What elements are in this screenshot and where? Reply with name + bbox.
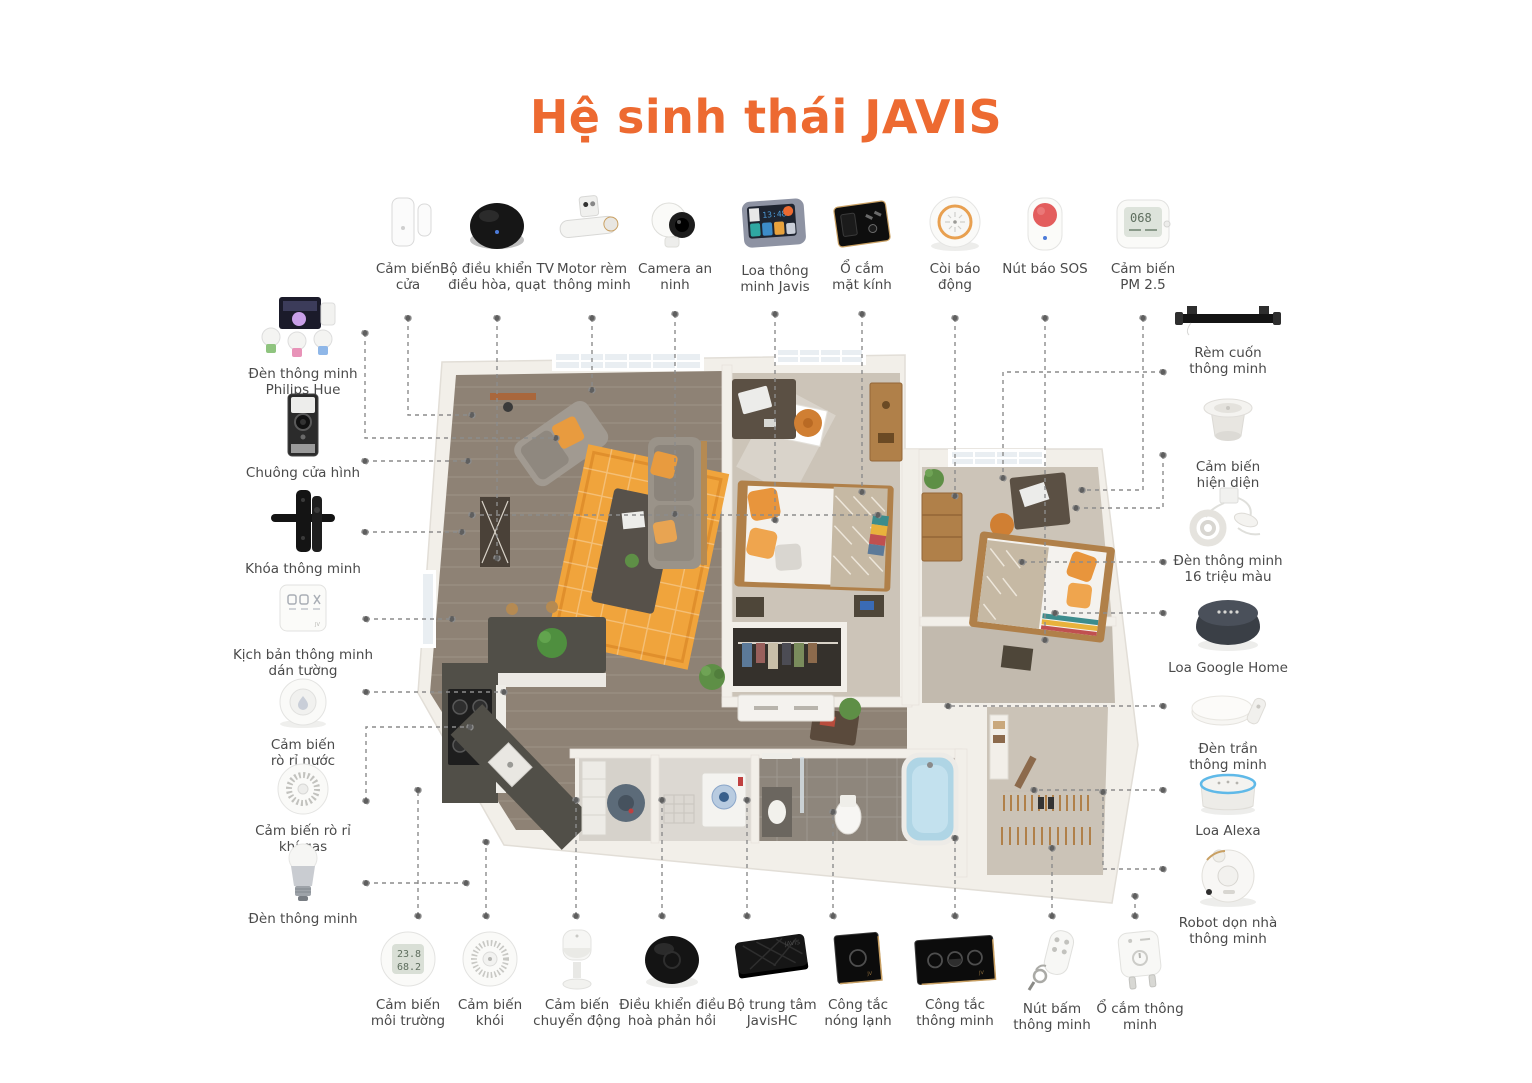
svg-text:068: 068 xyxy=(1130,211,1152,225)
device-label: Khóa thông minh xyxy=(245,561,361,577)
smart-switch-icon: JV xyxy=(910,926,1000,992)
water-leak-sensor-icon xyxy=(265,674,341,732)
philips-hue-kit-icon xyxy=(253,293,353,361)
svg-text:JV: JV xyxy=(978,970,985,976)
video-doorbell-icon xyxy=(265,390,341,460)
security-camera-icon xyxy=(637,192,713,256)
device-presence-sensor: Cảm biến hiện diện xyxy=(1153,388,1303,492)
device-label: Công tắc thông minh xyxy=(910,997,1000,1030)
smart-plug-icon xyxy=(1102,926,1178,996)
svg-text:JV: JV xyxy=(314,622,320,628)
svg-text:23.8: 23.8 xyxy=(397,949,421,960)
svg-text:JV: JV xyxy=(866,971,873,978)
motion-sensor-icon xyxy=(539,926,615,992)
tv-ac-fan-controller-icon xyxy=(459,192,535,256)
device-label: Loa Google Home xyxy=(1168,660,1288,676)
google-home-speaker-icon xyxy=(1183,585,1273,655)
alexa-speaker-icon xyxy=(1183,762,1273,818)
device-google-home-speaker: Loa Google Home xyxy=(1153,585,1303,676)
smart-bulb-icon xyxy=(265,840,341,906)
sos-button-icon xyxy=(1007,192,1083,256)
device-label: Nút báo SOS xyxy=(1002,261,1087,277)
glass-socket-icon xyxy=(824,192,900,256)
device-scene-panel: JV Kịch bản thông minh dán tường xyxy=(228,580,378,680)
device-label: Ổ cắm mặt kính xyxy=(827,261,897,294)
device-label: Cảm biến PM 2.5 xyxy=(1103,261,1183,294)
device-smart-plug: Ổ cắm thông minh xyxy=(1080,926,1200,1034)
water-heater-switch-icon: JV xyxy=(820,926,896,992)
device-label: Công tắc nóng lạnh xyxy=(818,997,898,1030)
device-smart-lock: Khóa thông minh xyxy=(228,486,378,577)
device-philips-hue-kit: Đèn thông minh Philips Hue xyxy=(228,293,378,399)
device-smart-bulb: Đèn thông minh xyxy=(228,840,378,927)
device-label: Camera an ninh xyxy=(635,261,715,294)
ceiling-light-icon xyxy=(1180,688,1276,736)
device-label: Loa Alexa xyxy=(1195,823,1260,839)
led-strip-16m-icon xyxy=(1178,486,1278,548)
robot-vacuum-icon xyxy=(1183,840,1273,910)
infographic-canvas: Hệ sinh thái JAVIS xyxy=(0,0,1532,1083)
device-video-doorbell: Chuông cửa hình xyxy=(228,390,378,481)
device-led-strip-16m: Đèn thông minh 16 triệu màu xyxy=(1153,486,1303,586)
scene-panel-icon: JV xyxy=(265,580,341,642)
device-label: Đèn thông minh xyxy=(248,911,357,927)
floorplan xyxy=(402,325,1182,945)
page-title: Hệ sinh thái JAVIS xyxy=(0,90,1532,144)
device-roller-blind: Rèm cuốn thông minh xyxy=(1153,302,1303,378)
smart-button-icon xyxy=(1014,926,1090,996)
device-label: Chuông cửa hình xyxy=(246,465,360,481)
presence-sensor-icon xyxy=(1183,388,1273,454)
device-alexa-speaker: Loa Alexa xyxy=(1153,762,1303,839)
alarm-siren-icon xyxy=(917,192,993,256)
svg-text:68.2: 68.2 xyxy=(397,962,421,973)
device-label: Ổ cắm thông minh xyxy=(1095,1001,1185,1034)
pm25-sensor-icon: 068 xyxy=(1105,192,1181,256)
device-label: Rèm cuốn thông minh xyxy=(1178,345,1278,378)
device-water-leak-sensor: Cảm biến rò rỉ nước xyxy=(228,674,378,770)
device-label: Đèn thông minh 16 triệu màu xyxy=(1163,553,1293,586)
roller-blind-icon xyxy=(1173,302,1283,340)
device-pm25-sensor: 068 Cảm biến PM 2.5 xyxy=(1083,192,1203,294)
ac-feedback-controller-icon xyxy=(634,926,710,992)
device-label: Còi báo động xyxy=(920,261,990,294)
smart-lock-icon xyxy=(265,486,341,556)
gas-leak-sensor-icon xyxy=(265,760,341,818)
